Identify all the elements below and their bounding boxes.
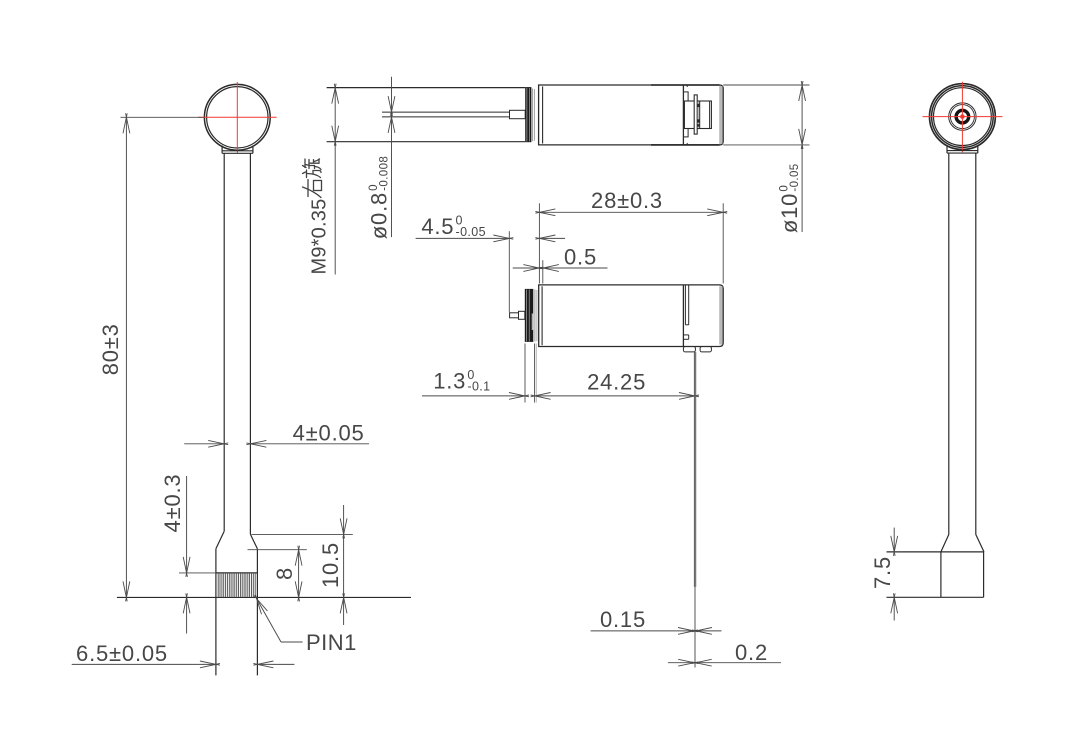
- svg-text:4±0.3: 4±0.3: [160, 474, 185, 533]
- svg-text:-0.05: -0.05: [456, 225, 487, 239]
- svg-text:6.5±0.05: 6.5±0.05: [76, 641, 168, 666]
- svg-text:1.3: 1.3: [433, 368, 466, 393]
- svg-text:24.25: 24.25: [587, 370, 646, 395]
- svg-text:4.5: 4.5: [421, 214, 454, 239]
- svg-text:10.5: 10.5: [318, 542, 343, 588]
- svg-text:PIN1: PIN1: [306, 630, 357, 655]
- svg-text:8: 8: [272, 567, 297, 580]
- svg-text:ø10: ø10: [777, 193, 802, 233]
- svg-text:-0.008: -0.008: [379, 156, 391, 191]
- svg-text:7.5: 7.5: [870, 556, 895, 589]
- svg-text:M9*0.35: M9*0.35: [309, 199, 331, 275]
- svg-text:-0.05: -0.05: [789, 163, 801, 191]
- svg-text:ø0.8: ø0.8: [366, 192, 391, 239]
- svg-text:28±0.3: 28±0.3: [591, 188, 663, 213]
- svg-text:0.2: 0.2: [735, 640, 768, 665]
- svg-text:80±3: 80±3: [98, 323, 123, 375]
- svg-text:0.15: 0.15: [600, 607, 646, 632]
- svg-text:-0.1: -0.1: [467, 380, 490, 394]
- svg-text:4±0.05: 4±0.05: [293, 421, 365, 446]
- svg-text:0.5: 0.5: [564, 244, 597, 269]
